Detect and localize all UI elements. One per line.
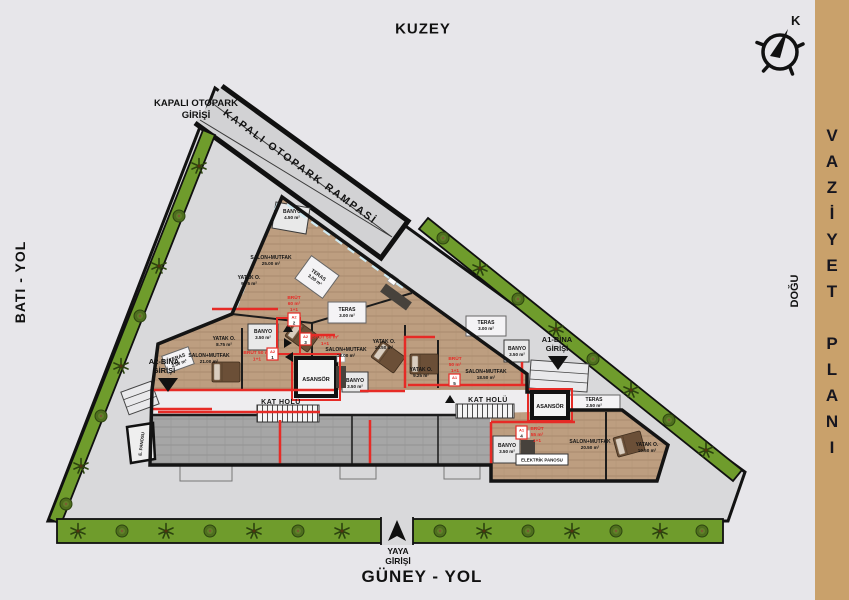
svg-text:A2: A2: [270, 349, 276, 354]
svg-text:A1: A1: [519, 428, 525, 433]
svg-text:3: 3: [304, 340, 307, 345]
svg-text:4.50 m²: 4.50 m²: [284, 215, 300, 220]
svg-text:A2: A2: [291, 315, 297, 320]
site-plan-page: BANYO 4.50 m² SALON+MUTFAK 25.00 m² YATA…: [0, 0, 849, 600]
svg-text:3.50 m²: 3.50 m²: [255, 335, 271, 340]
plan-title-word-2: PLANI: [824, 334, 841, 464]
svg-text:21.00 m²: 21.00 m²: [200, 359, 219, 364]
svg-text:9.75 m²: 9.75 m²: [241, 281, 257, 286]
svg-text:1+1: 1+1: [321, 341, 329, 347]
svg-text:18.50 m²: 18.50 m²: [477, 375, 496, 380]
hall-label-a1: KAT HOLÜ: [468, 395, 508, 404]
north-compass-icon: K: [757, 13, 803, 74]
site-plan-drawing: BANYO 4.50 m² SALON+MUTFAK 25.00 m² YATA…: [0, 0, 849, 600]
svg-text:2.50 m²: 2.50 m²: [586, 403, 602, 408]
svg-text:3.00 m²: 3.00 m²: [339, 313, 355, 318]
east-label: DOĞU: [789, 275, 801, 308]
svg-text:5: 5: [453, 381, 456, 386]
south-road-label: GÜNEY - YOL: [362, 567, 483, 587]
stairs-a2: [257, 405, 319, 422]
svg-text:1+1: 1+1: [533, 438, 541, 444]
a2-building-entrance-label: A2-BİNA GİRİŞİ: [149, 357, 179, 375]
svg-text:3.50 m²: 3.50 m²: [499, 449, 515, 454]
svg-text:3.00 m²: 3.00 m²: [478, 326, 494, 331]
svg-text:50 m²: 50 m²: [449, 362, 462, 368]
svg-text:3.50 m²: 3.50 m²: [347, 384, 363, 389]
plan-title-word-1: VAZİYET: [824, 126, 841, 308]
svg-text:1+1: 1+1: [290, 307, 298, 313]
hall-label-a2: KAT HOLÜ: [261, 397, 301, 406]
svg-text:BRÜT 50 m²: BRÜT 50 m²: [311, 334, 339, 341]
svg-text:1+1: 1+1: [253, 357, 261, 363]
svg-text:25.00 m²: 25.00 m²: [262, 261, 281, 266]
svg-text:1: 1: [271, 355, 274, 360]
svg-text:3.50 m²: 3.50 m²: [509, 352, 525, 357]
svg-text:60 m²: 60 m²: [288, 301, 301, 307]
svg-text:A2: A2: [303, 334, 309, 339]
a1-building-entrance-label: A1-BİNA GİRİŞİ: [542, 335, 572, 353]
svg-text:10.50 m²: 10.50 m²: [638, 448, 657, 453]
north-label: KUZEY: [395, 21, 451, 38]
elevator-label-a2: ASANSÖR: [302, 376, 330, 383]
svg-text:1+1: 1+1: [451, 368, 459, 374]
svg-text:A1: A1: [452, 375, 458, 380]
compass-k-label: K: [791, 13, 801, 28]
svg-text:20.50 m²: 20.50 m²: [581, 445, 600, 450]
svg-text:9.25 m²: 9.25 m²: [413, 373, 429, 378]
stairs-a1: [456, 404, 514, 418]
svg-text:BRÜT: BRÜT: [287, 294, 300, 301]
electrical-panel-label: ELEKTRİK PANOSU: [521, 458, 563, 463]
shops-floor: [152, 415, 490, 465]
svg-text:8.75 m²: 8.75 m²: [216, 342, 232, 347]
svg-text:10.50 m²: 10.50 m²: [375, 345, 394, 350]
svg-text:18.00 m²: 18.00 m²: [337, 353, 356, 358]
elevator-label-a1: ASANSÖR: [536, 403, 564, 410]
svg-text:4: 4: [520, 434, 523, 439]
pedestrian-entrance-label: YAYA GİRİŞİ: [385, 546, 411, 566]
west-road-label: BATI - YOL: [12, 241, 28, 324]
svg-text:BRÜT: BRÜT: [530, 425, 543, 432]
svg-text:BRÜT: BRÜT: [448, 355, 461, 362]
title-side-panel: VAZİYET PLANI: [815, 0, 849, 600]
svg-text:55 m²: 55 m²: [531, 432, 544, 438]
svg-text:2: 2: [293, 321, 296, 326]
